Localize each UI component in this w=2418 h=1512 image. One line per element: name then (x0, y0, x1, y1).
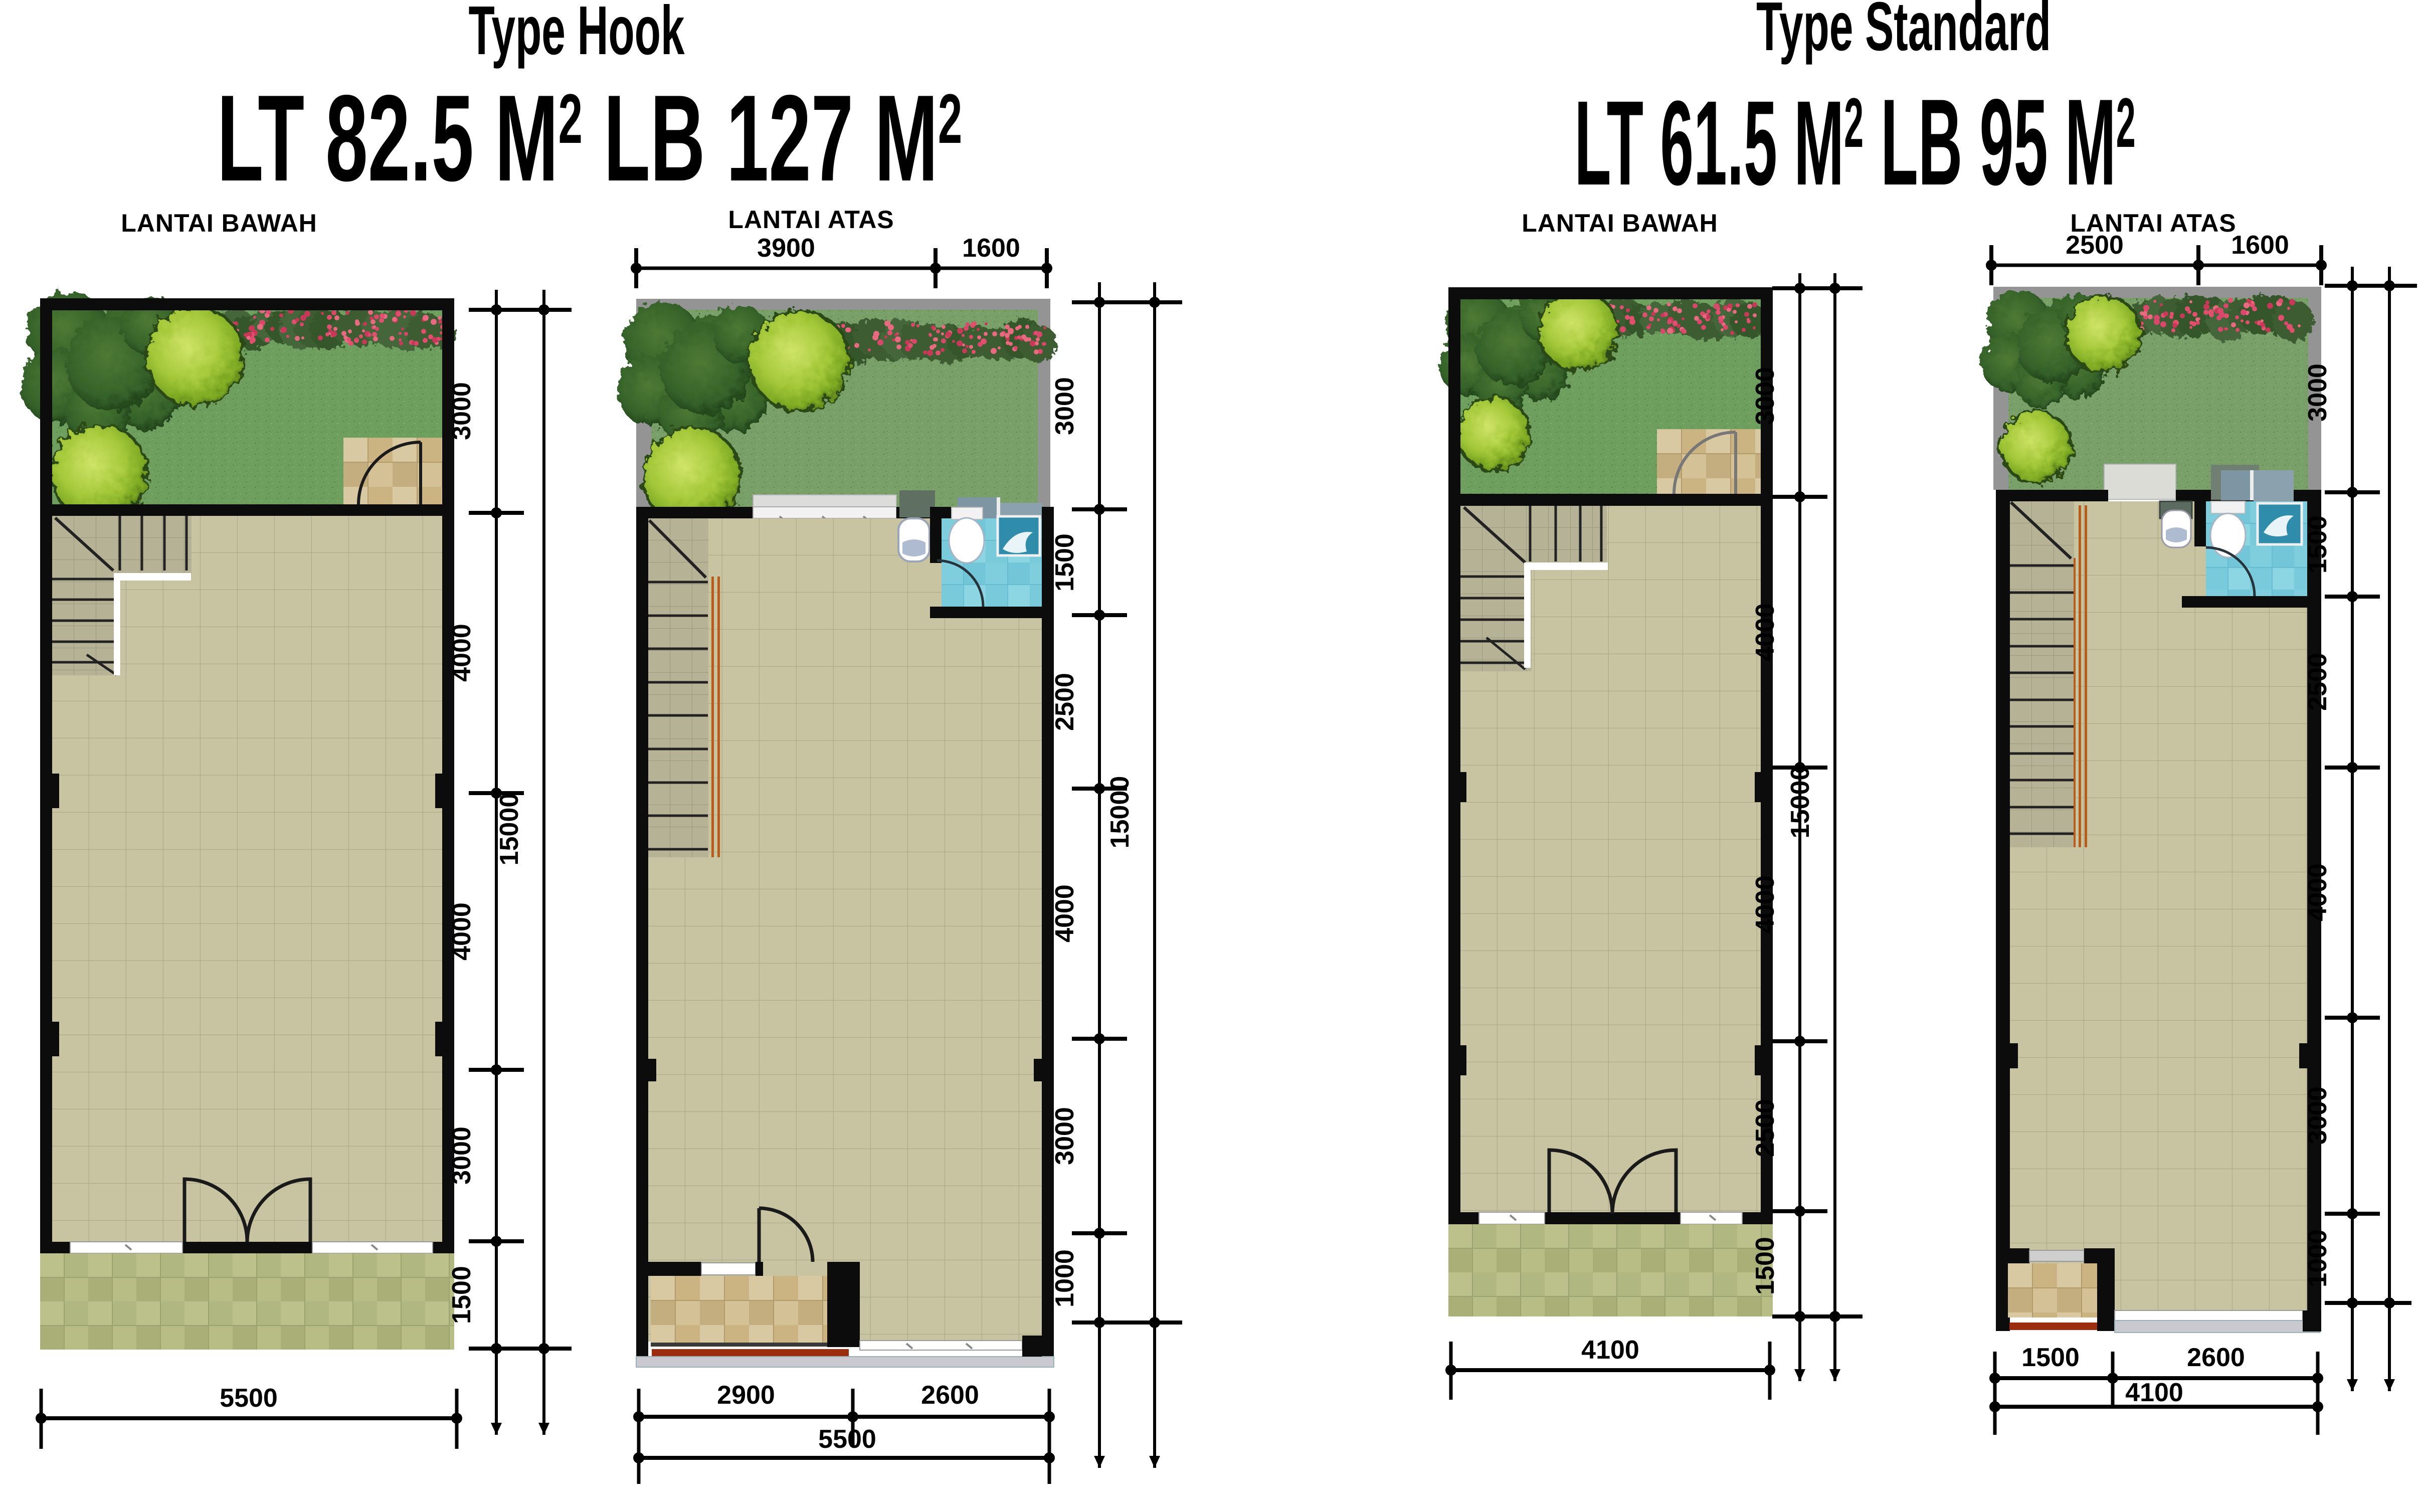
svg-text:LANTAI ATAS: LANTAI ATAS (728, 206, 894, 234)
svg-text:2500: 2500 (1050, 673, 1079, 731)
svg-text:3000: 3000 (2303, 1086, 2332, 1145)
svg-text:2900: 2900 (717, 1381, 775, 1410)
svg-text:LT 82.5 M2 LB 127 M2: LT 82.5 M2 LB 127 M2 (217, 70, 962, 207)
svg-text:2500: 2500 (2303, 653, 2332, 711)
svg-text:5500: 5500 (818, 1425, 876, 1454)
svg-text:1500: 1500 (1751, 1237, 1780, 1295)
svg-text:3000: 3000 (1751, 367, 1780, 425)
svg-text:2600: 2600 (2187, 1343, 2245, 1372)
svg-text:4100: 4100 (1581, 1336, 1639, 1365)
svg-text:LANTAI BAWAH: LANTAI BAWAH (1522, 209, 1718, 237)
svg-text:4000: 4000 (1751, 875, 1780, 933)
svg-text:1500: 1500 (447, 1266, 476, 1324)
svg-text:4000: 4000 (447, 624, 476, 682)
svg-text:3900: 3900 (757, 234, 815, 263)
svg-text:15000: 15000 (1786, 766, 1815, 839)
svg-text:3000: 3000 (2303, 363, 2332, 422)
svg-text:5500: 5500 (220, 1384, 278, 1413)
svg-text:Type Standard: Type Standard (1756, 0, 2051, 65)
svg-text:2500: 2500 (2066, 231, 2124, 260)
svg-text:3000: 3000 (447, 1126, 476, 1185)
svg-text:3000: 3000 (1050, 1107, 1079, 1165)
svg-text:4100: 4100 (2125, 1378, 2183, 1407)
svg-text:1600: 1600 (962, 234, 1020, 263)
svg-text:Type Hook: Type Hook (469, 0, 685, 69)
svg-text:2500: 2500 (1751, 1099, 1780, 1157)
svg-text:1500: 1500 (2303, 515, 2332, 574)
svg-text:4000: 4000 (1050, 884, 1079, 942)
svg-text:1600: 1600 (2231, 231, 2289, 260)
svg-text:15000: 15000 (1105, 776, 1135, 849)
svg-text:2600: 2600 (921, 1381, 979, 1410)
svg-text:4000: 4000 (1751, 603, 1780, 661)
svg-text:4000: 4000 (447, 902, 476, 961)
svg-text:LANTAI BAWAH: LANTAI BAWAH (121, 209, 317, 237)
svg-text:4000: 4000 (2303, 863, 2332, 921)
svg-text:15000: 15000 (495, 793, 524, 866)
svg-text:1000: 1000 (2303, 1229, 2332, 1287)
svg-text:1000: 1000 (1050, 1249, 1079, 1307)
svg-text:1500: 1500 (1050, 533, 1079, 592)
svg-text:3000: 3000 (1050, 377, 1079, 435)
svg-text:3000: 3000 (447, 382, 476, 440)
svg-text:1500: 1500 (2021, 1343, 2080, 1372)
